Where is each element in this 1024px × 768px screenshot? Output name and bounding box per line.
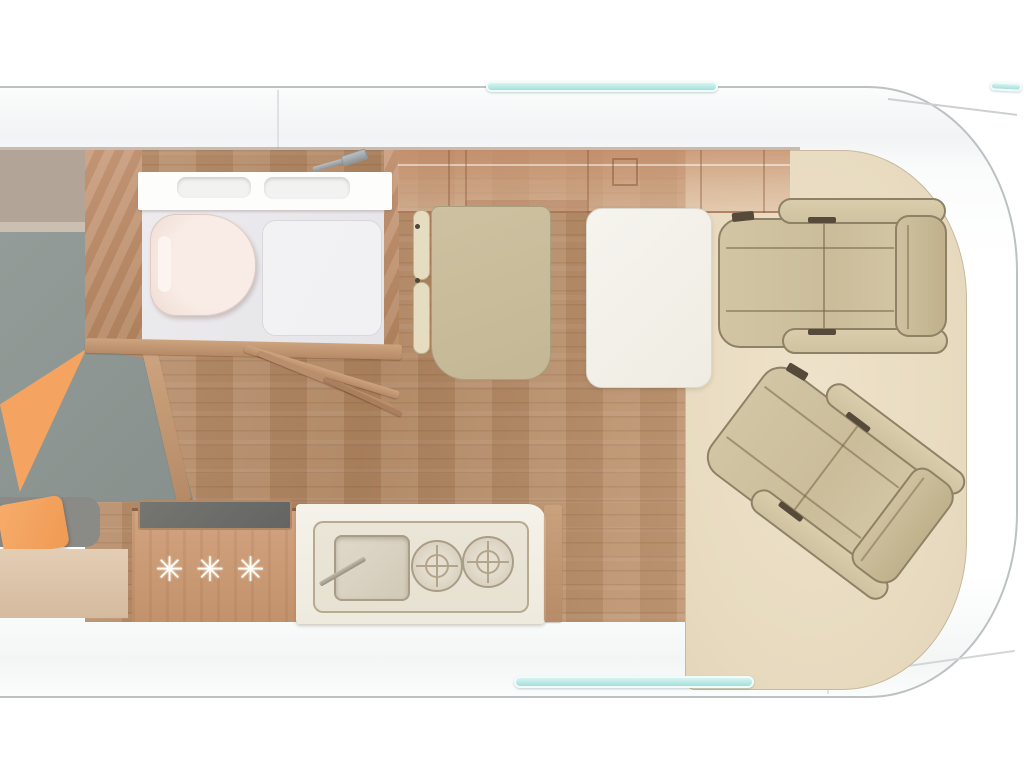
toilet-lid-hinge — [158, 236, 171, 292]
dinette-backrest-cushion-upper — [413, 210, 430, 280]
bathroom-basin-right — [264, 177, 350, 199]
backrest-seam — [907, 225, 909, 329]
front-right-window — [990, 81, 1022, 92]
bed-head-shelf-edge — [0, 222, 86, 233]
roof-vent — [612, 158, 638, 186]
bed-foot-shelf — [0, 549, 128, 618]
swivel-seat-passenger — [716, 198, 952, 354]
bed-head-shelf — [0, 150, 86, 233]
bathroom-basin-left — [177, 177, 251, 198]
roof-window-top — [486, 81, 718, 92]
fridge-snowflake-icons: ✳✳✳ — [140, 548, 292, 592]
cabinet-seam — [700, 150, 702, 213]
headrest-peg — [415, 278, 420, 283]
hob-burner-left — [411, 540, 463, 592]
bathroom-left-wall — [85, 150, 142, 350]
roof-panel-seam — [277, 90, 279, 148]
seat-seam — [726, 247, 894, 249]
floorplan-canvas: ✳✳✳ — [0, 0, 1024, 768]
seat-seam — [823, 224, 825, 342]
dinette-bench-seat — [431, 206, 551, 380]
kitchen-end-panel — [544, 505, 562, 622]
cabinet-shelf-line — [398, 164, 790, 166]
seat-backrest — [895, 215, 947, 337]
sliding-door-window — [514, 676, 754, 688]
cabinet-seam — [448, 150, 450, 213]
hob-burner-right — [462, 536, 514, 588]
seat-seam — [726, 310, 894, 312]
burner-ring — [425, 554, 449, 578]
headrest-peg — [415, 224, 420, 229]
burner-ring — [476, 550, 500, 574]
shower-tray — [262, 220, 382, 336]
dinette-backrest-cushion-lower — [413, 282, 430, 354]
fridge-top-surface — [138, 500, 292, 530]
seat-belt-mount — [808, 217, 836, 223]
seat-belt-mount — [808, 329, 836, 335]
dinette-table — [586, 208, 712, 388]
cabinet-seam — [587, 150, 589, 213]
